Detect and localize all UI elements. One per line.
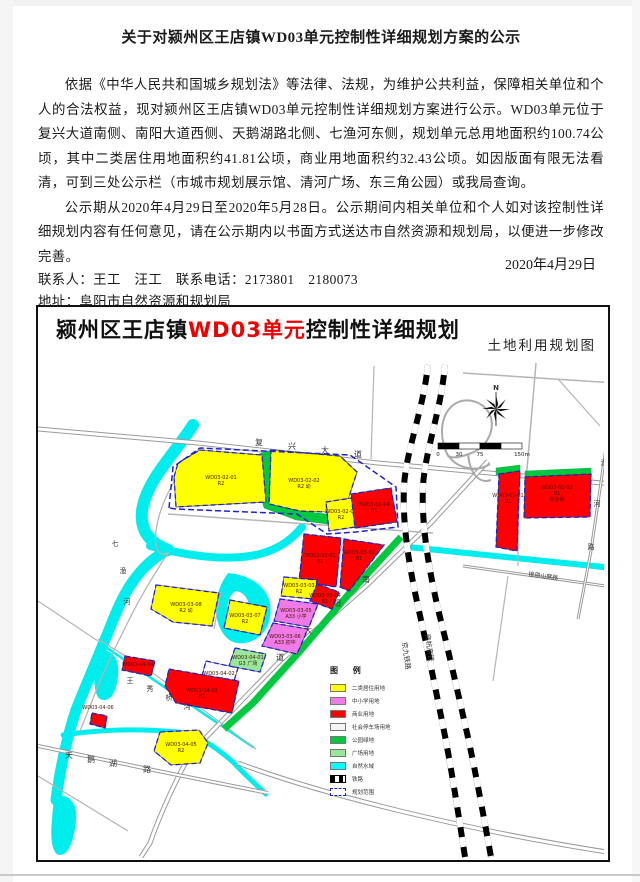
north-arrow-blade — [494, 409, 496, 423]
legend-item-6: 广场用地 — [330, 746, 450, 759]
legend-swatch — [330, 684, 346, 692]
map-label: 道 — [276, 652, 284, 662]
parcel-label: B1 — [356, 556, 363, 562]
scale-bar-label: 0 — [436, 452, 440, 458]
legend-item-5: 公园绿地 — [330, 733, 450, 746]
road-minor — [38, 776, 128, 831]
map-label: 商杭高铁 — [423, 633, 436, 662]
river-water — [150, 527, 302, 558]
parcel-label: B1 — [317, 559, 324, 565]
parcel-label: B1 — [505, 499, 512, 505]
notice-paragraph-1: 依据《中华人民共和国城乡规划法》等法律、法规，为维护公共利益，保障相关单位和个人… — [38, 73, 604, 196]
north-arrow-blade — [496, 395, 498, 409]
legend-label: 公园绿地 — [352, 736, 374, 744]
land-use-map-canvas: WD03-02-01R2WD03-02-02R2 幼WD03-02-03R2WD… — [38, 351, 604, 858]
scale-bar-segment — [438, 443, 459, 449]
legend-swatch — [330, 736, 346, 744]
road-minor — [463, 373, 604, 383]
map-label: 渔 — [120, 566, 127, 575]
map-label: 秀 — [147, 684, 154, 693]
parcel-label: B1 — [322, 599, 329, 605]
legend-label: 自然水域 — [352, 762, 374, 770]
map-label: 桥 — [166, 693, 173, 702]
legend-label: 铁路 — [352, 775, 363, 783]
legend-rows: 二类居住用地中小学用地商业用地社会停车场用地公园绿地广场用地自然水域铁路规划范围 — [330, 681, 450, 798]
legend-item-1: 二类居住用地 — [330, 681, 450, 694]
map-legend: 图 例 二类居住用地中小学用地商业用地社会停车场用地公园绿地广场用地自然水域铁路… — [330, 665, 450, 798]
legend-label: 规划范围 — [352, 788, 374, 796]
legend-swatch — [330, 749, 346, 757]
parcel-label: R2 — [178, 748, 185, 754]
map-label: 阳 — [333, 599, 341, 608]
map-title-suffix: 控制性详细规划 — [306, 318, 460, 342]
notice-title: 关于对颍州区王店镇WD03单元控制性详细规划方案的公示 — [38, 26, 604, 47]
parcel-label: B1 — [371, 508, 378, 514]
map-title-highlight: WD03单元 — [188, 318, 306, 342]
legend-swatch — [330, 775, 346, 783]
map-label: 南 — [362, 574, 370, 584]
legend-swatch — [330, 788, 346, 796]
road-minor — [371, 366, 374, 459]
river-water — [51, 796, 76, 855]
road-minor — [493, 576, 508, 681]
legend-label: 二类居住用地 — [352, 684, 385, 692]
parcel-label: R2 — [218, 481, 225, 487]
legend-label: 商业用地 — [352, 710, 374, 718]
map-label: 大 — [321, 445, 329, 455]
map-label: 路 — [588, 542, 595, 551]
map-label: 路 — [143, 764, 151, 774]
road-minor — [558, 379, 600, 426]
public-notice-page: 关于对颍州区王店镇WD03单元控制性详细规划方案的公示 依据《中华人民共和国城乡… — [0, 0, 640, 882]
parcel-WD03-01-01 — [496, 471, 520, 551]
map-label: 接邵山窝路 — [528, 570, 559, 582]
parcel-label: R2 — [296, 589, 303, 595]
map-label: 湖 — [109, 759, 117, 768]
parcel-label: B1 — [199, 694, 206, 700]
map-label: 道 — [354, 449, 362, 459]
scale-bar-segment — [501, 443, 522, 449]
map-label: 兴 — [288, 442, 296, 451]
map-label: 复 — [255, 437, 263, 447]
legend-swatch — [330, 710, 346, 718]
page-edge-right — [632, 0, 640, 882]
scale-bar-segment — [480, 443, 501, 449]
legend-swatch — [330, 762, 346, 770]
legend-item-8: 铁路 — [330, 772, 450, 785]
legend-item-2: 中小学用地 — [330, 694, 450, 707]
legend-label: 社会停车场用地 — [352, 723, 391, 731]
map-title-prefix: 颍州区王店镇 — [56, 318, 188, 342]
parcel-label: R2 幼 — [179, 607, 192, 614]
parcel-label: WD03-04-06 — [82, 705, 114, 711]
scale-bar-label: 75 — [477, 452, 484, 458]
parcel-label: G3 广场 — [239, 660, 258, 667]
notice-text-block: 关于对颍州区王店镇WD03单元控制性详细规划方案的公示 依据《中华人民共和国城乡… — [38, 26, 604, 335]
map-label: 河 — [594, 500, 601, 508]
legend-swatch — [330, 723, 346, 731]
page-edge-top — [0, 0, 640, 6]
legend-item-3: 商业用地 — [330, 707, 450, 720]
map-label: 鹅 — [87, 754, 95, 764]
north-arrow-blade — [496, 409, 510, 411]
map-label: 沟 — [184, 702, 191, 711]
parcel-label: WD03-04-04 — [122, 662, 154, 668]
legend-label: 中小学用地 — [352, 697, 380, 705]
page-edge-bottom — [0, 874, 640, 876]
map-label: 大 — [304, 625, 312, 635]
parcel-label: A33 初中 — [274, 639, 295, 646]
map-label: 王 — [127, 677, 134, 685]
land-use-map-frame: 颍州区王店镇WD03单元控制性详细规划 土地利用规划图 WD03-02-01R2… — [36, 305, 610, 862]
parcel-label: R2 幼 — [297, 483, 310, 490]
scale-bar-segment — [459, 443, 480, 449]
road-minor — [526, 363, 536, 481]
road-minor — [38, 601, 98, 641]
legend-item-9: 规划范围 — [330, 785, 450, 798]
map-label: 渔 — [601, 458, 605, 467]
parcel-label: A33 小学 — [285, 613, 306, 620]
legend-label: 广场用地 — [352, 749, 374, 757]
map-label: N — [493, 384, 499, 392]
parcel-label: R2 — [338, 515, 345, 521]
map-label: 河 — [124, 598, 131, 606]
legend-title: 图 例 — [330, 665, 450, 676]
legend-item-7: 自然水域 — [330, 759, 450, 772]
legend-swatch — [330, 697, 346, 705]
parcel-label: 商业街 — [549, 496, 564, 503]
map-title: 颍州区王店镇WD03单元控制性详细规划 — [56, 314, 460, 344]
parcel-label: R2 — [242, 619, 249, 625]
map-label: 七 — [604, 424, 605, 433]
legend-item-4: 社会停车场用地 — [330, 720, 450, 733]
scale-bar-label: 150m — [514, 452, 530, 458]
scale-bar-label: 30 — [456, 452, 463, 458]
map-label: 天 — [65, 751, 73, 760]
notice-date: 2020年4月29日 — [505, 254, 596, 274]
map-label: 七 — [112, 539, 119, 548]
page-edge-left — [0, 0, 13, 882]
river-water — [94, 651, 118, 700]
river-water — [408, 547, 604, 568]
